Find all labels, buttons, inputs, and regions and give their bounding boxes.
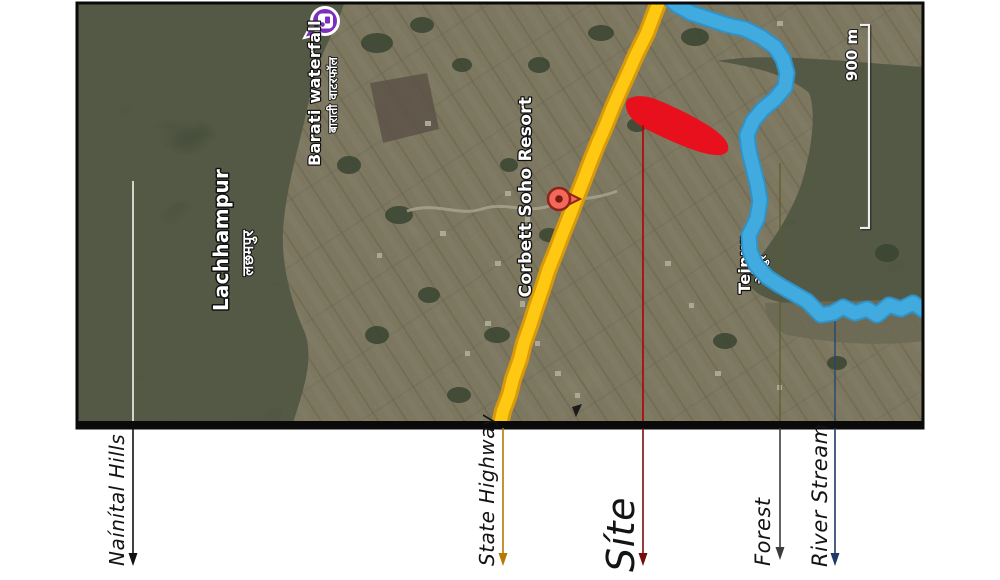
place-label-lachhampur: Lachhampur (209, 169, 233, 311)
forest-arrowhead-icon (776, 547, 785, 560)
site-map-figure: Tejpur तेजपुर (0, 0, 1000, 580)
place-label-barati-waterfall: Barati waterfall (305, 20, 324, 166)
annotation-state-highway: State Highway (475, 413, 499, 566)
annotation-forest: Forest (751, 497, 775, 566)
satellite-map: Tejpur तेजपुर (77, 0, 925, 430)
figure-canvas: Tejpur तेजपुर (0, 0, 1000, 580)
highway-arrowhead-icon (499, 553, 508, 566)
satellite-grain (77, 3, 923, 428)
annotation-river-stream: River Stream (808, 423, 832, 567)
scale-label: 900 m (843, 29, 861, 81)
map-border-bottom (77, 421, 923, 428)
annotation-nainital-hills: Naínítal Hills (105, 434, 129, 566)
place-label-corbett-soho-resort: Corbett Soho Resort (516, 97, 536, 298)
hills-arrowhead-icon (129, 553, 138, 566)
annotation-site: Síte (599, 497, 643, 572)
place-label-barati-waterfall-hindi: बाराती वाटरफॉल (326, 56, 340, 134)
place-label-lachhampur-hindi: लछमपुर (239, 230, 258, 277)
callout-annotations: Naínítal Hills State Highway Síte Forest… (105, 413, 840, 572)
